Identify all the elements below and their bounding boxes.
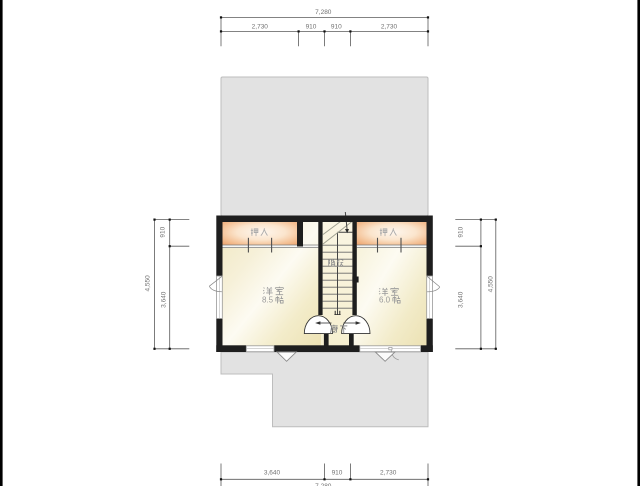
svg-text:3,640: 3,640 xyxy=(161,291,168,308)
svg-text:4,550: 4,550 xyxy=(145,275,152,292)
svg-text:910: 910 xyxy=(458,226,465,237)
svg-text:2,730: 2,730 xyxy=(381,23,398,30)
svg-text:910: 910 xyxy=(159,226,166,237)
svg-text:4,550: 4,550 xyxy=(487,276,494,293)
svg-text:2,730: 2,730 xyxy=(380,469,397,476)
svg-text:6.0: 6.0 xyxy=(379,296,391,305)
svg-text:3,640: 3,640 xyxy=(264,469,281,476)
svg-text:910: 910 xyxy=(306,23,317,30)
svg-text:910: 910 xyxy=(331,23,342,30)
svg-text:8.5: 8.5 xyxy=(262,296,274,305)
svg-text:7,280: 7,280 xyxy=(315,9,332,16)
svg-text:910: 910 xyxy=(332,469,343,476)
svg-text:2,730: 2,730 xyxy=(252,23,269,30)
svg-text:3,640: 3,640 xyxy=(457,291,464,308)
